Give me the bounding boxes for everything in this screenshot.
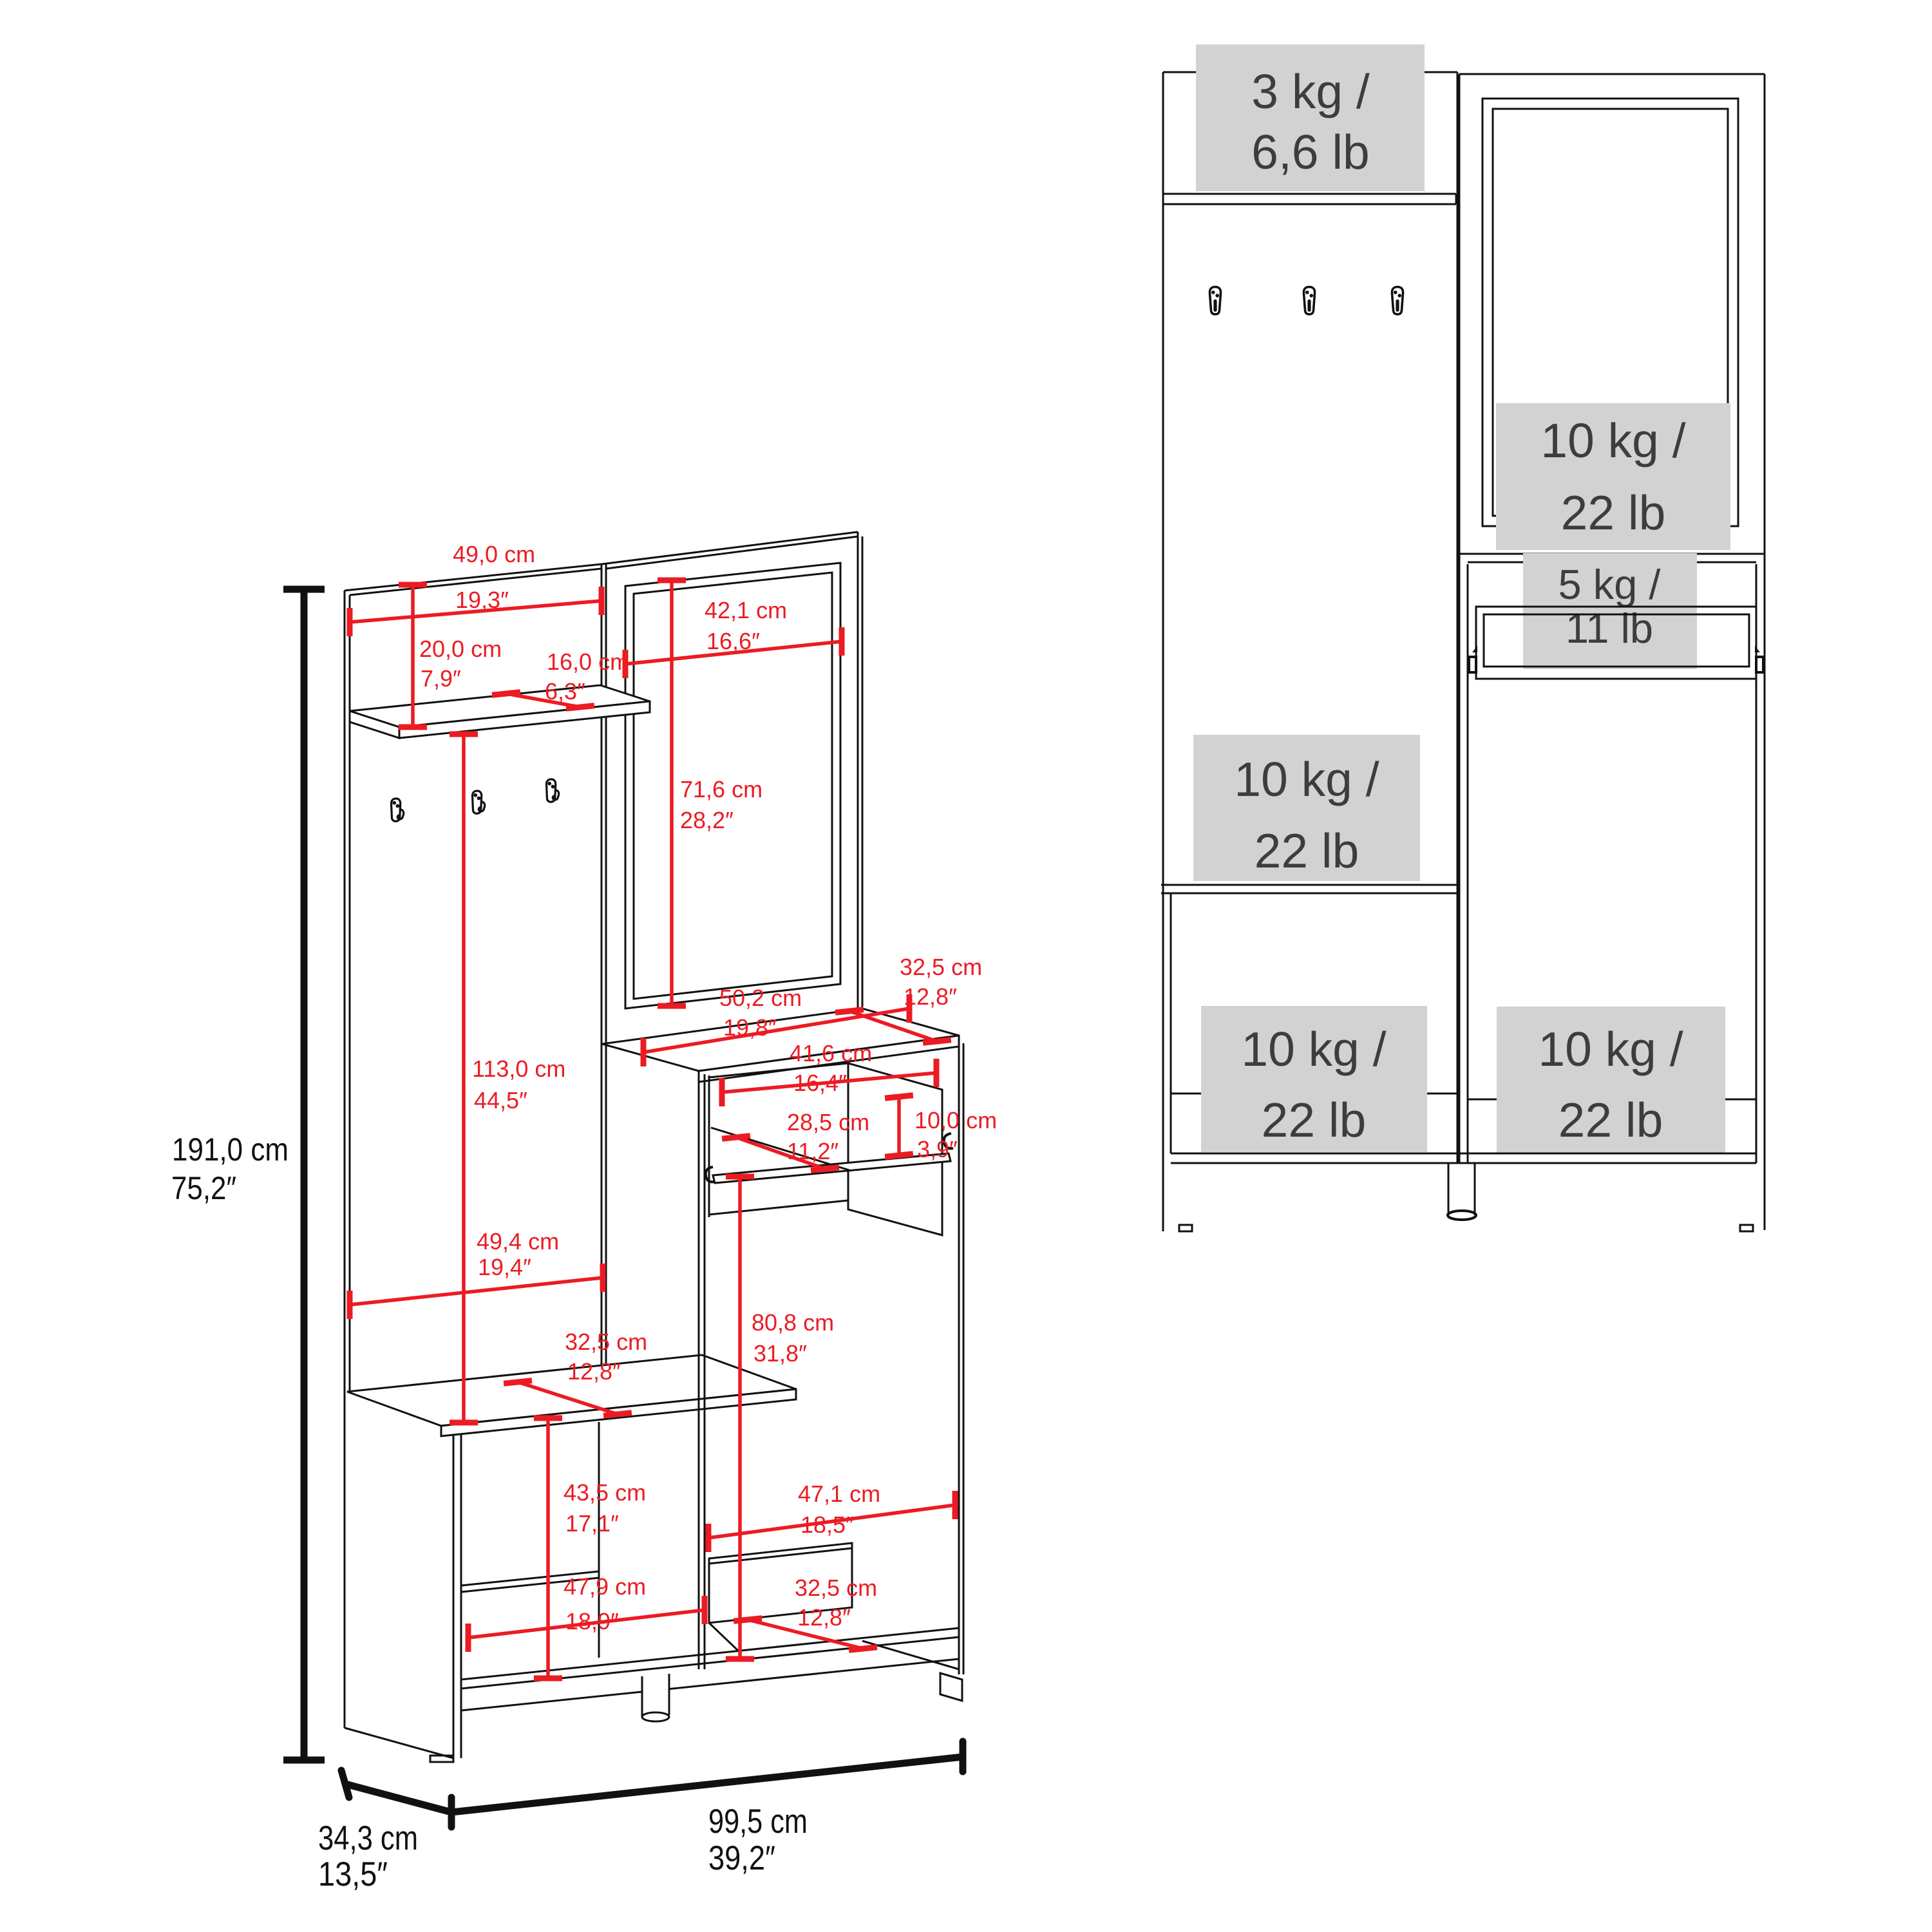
svg-text:19,3″: 19,3″ (455, 587, 509, 613)
svg-text:49,0 cm: 49,0 cm (453, 541, 535, 567)
svg-text:17,1″: 17,1″ (565, 1510, 619, 1537)
svg-text:16,4″: 16,4″ (793, 1070, 847, 1096)
svg-text:41,6 cm: 41,6 cm (790, 1040, 872, 1066)
svg-text:6,6 lb: 6,6 lb (1251, 125, 1369, 179)
svg-text:12,8″: 12,8″ (797, 1604, 851, 1631)
svg-text:43,5 cm: 43,5 cm (563, 1479, 646, 1506)
svg-text:113,0 cm: 113,0 cm (472, 1056, 565, 1082)
svg-text:19,8″: 19,8″ (723, 1014, 777, 1041)
svg-text:6,3″: 6,3″ (545, 678, 585, 705)
svg-text:22 lb: 22 lb (1558, 1093, 1663, 1147)
svg-text:22 lb: 22 lb (1561, 486, 1666, 540)
svg-text:31,8″: 31,8″ (753, 1340, 807, 1367)
svg-text:16,6″: 16,6″ (706, 628, 760, 654)
svg-text:28,2″: 28,2″ (680, 807, 734, 833)
svg-text:44,5″: 44,5″ (474, 1087, 527, 1113)
svg-text:11,2″: 11,2″ (787, 1138, 838, 1164)
svg-text:22 lb: 22 lb (1255, 824, 1359, 878)
svg-text:50,2 cm: 50,2 cm (719, 985, 802, 1011)
svg-text:10 kg /: 10 kg / (1538, 1022, 1683, 1076)
svg-text:16,0 cm: 16,0 cm (547, 649, 629, 675)
svg-text:47,1 cm: 47,1 cm (798, 1481, 880, 1507)
svg-text:39,2″: 39,2″ (708, 1839, 775, 1877)
svg-text:19,4″: 19,4″ (478, 1254, 531, 1280)
svg-text:47,9 cm: 47,9 cm (563, 1573, 646, 1600)
svg-text:7,9″: 7,9″ (421, 665, 461, 692)
svg-text:28,5 cm: 28,5 cm (787, 1109, 869, 1135)
svg-text:10,0 cm: 10,0 cm (914, 1107, 997, 1133)
svg-text:10 kg /: 10 kg / (1241, 1022, 1386, 1076)
svg-text:22 lb: 22 lb (1262, 1093, 1367, 1147)
svg-text:18,9″: 18,9″ (565, 1608, 619, 1634)
svg-text:5 kg /: 5 kg / (1558, 561, 1662, 608)
svg-text:49,4 cm: 49,4 cm (477, 1228, 559, 1255)
svg-text:11 lb: 11 lb (1566, 605, 1653, 652)
svg-text:32,5 cm: 32,5 cm (900, 954, 982, 980)
svg-text:191,0 cm: 191,0 cm (172, 1132, 289, 1168)
svg-text:20,0 cm: 20,0 cm (419, 636, 502, 662)
svg-text:13,5″: 13,5″ (318, 1855, 388, 1893)
svg-text:34,3 cm: 34,3 cm (318, 1819, 418, 1857)
svg-text:32,5 cm: 32,5 cm (565, 1329, 647, 1355)
svg-text:10 kg /: 10 kg / (1234, 752, 1379, 806)
svg-text:71,6 cm: 71,6 cm (680, 776, 762, 802)
svg-text:12,8″: 12,8″ (567, 1358, 621, 1385)
svg-text:3,9″: 3,9″ (917, 1136, 958, 1162)
svg-text:32,5 cm: 32,5 cm (795, 1575, 877, 1601)
svg-text:42,1 cm: 42,1 cm (705, 597, 787, 623)
svg-text:3 kg /: 3 kg / (1251, 64, 1370, 118)
svg-text:18,5″: 18,5″ (800, 1511, 854, 1538)
svg-text:12,8″: 12,8″ (904, 983, 957, 1010)
svg-text:99,5 cm: 99,5 cm (708, 1803, 808, 1841)
svg-text:80,8 cm: 80,8 cm (752, 1309, 834, 1336)
svg-text:10 kg /: 10 kg / (1540, 413, 1685, 468)
svg-text:75,2″: 75,2″ (171, 1170, 236, 1206)
